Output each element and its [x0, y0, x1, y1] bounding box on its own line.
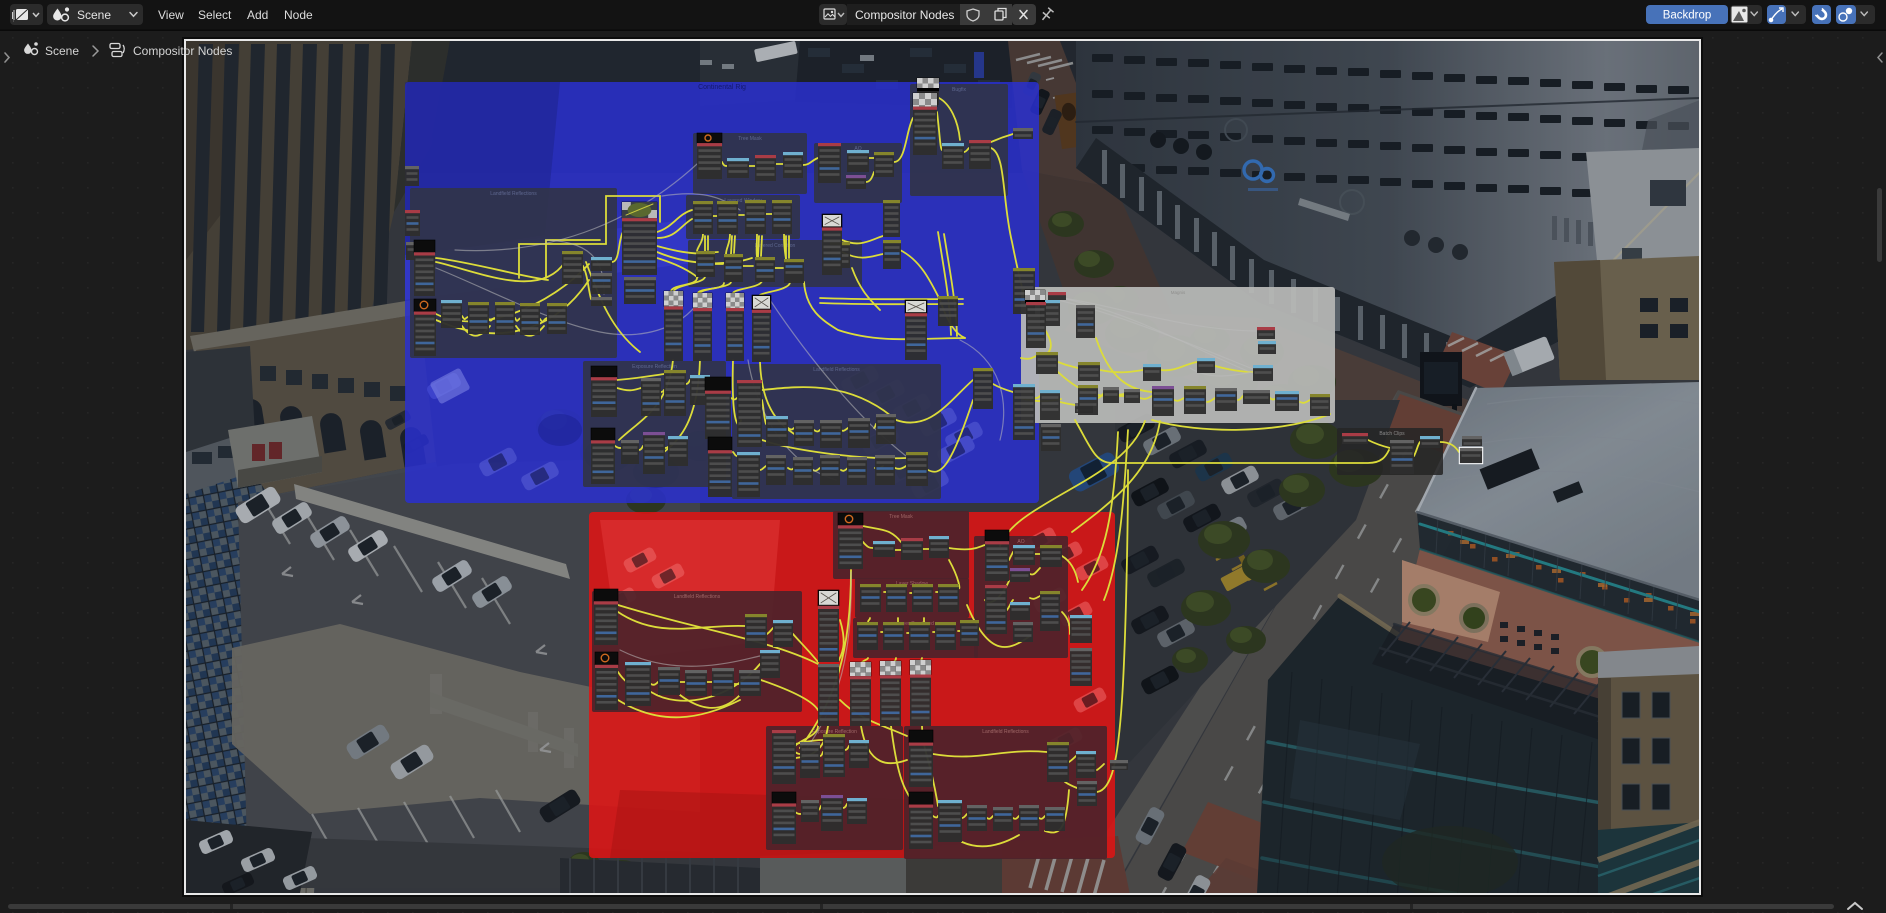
svg-text:Exposure Reflection: Exposure Reflection	[632, 364, 677, 370]
svg-text:Tree Mask: Tree Mask	[889, 514, 913, 520]
svg-text:Landfield Reflections: Landfield Reflections	[982, 729, 1029, 735]
svg-text:Add: Add	[247, 8, 268, 22]
svg-text:Tree Mask: Tree Mask	[738, 136, 762, 142]
svg-text:Landfield Reflections: Landfield Reflections	[490, 191, 537, 197]
svg-text:Scene: Scene	[45, 44, 79, 58]
svg-text:Compositor Nodes: Compositor Nodes	[855, 8, 954, 22]
svg-text:Magnis: Magnis	[1171, 290, 1186, 295]
svg-text:Select: Select	[198, 8, 232, 22]
svg-text:Batch Clips: Batch Clips	[1379, 431, 1405, 437]
svg-text:Scene: Scene	[77, 8, 111, 22]
svg-text:Bugfix: Bugfix	[952, 87, 966, 93]
svg-text:View: View	[158, 8, 184, 22]
svg-text:Landfield Reflections: Landfield Reflections	[674, 594, 721, 600]
svg-text:Node: Node	[284, 8, 313, 22]
svg-text:Backdrop: Backdrop	[1663, 10, 1712, 22]
svg-text:Compositor Nodes: Compositor Nodes	[133, 44, 232, 58]
svg-text:AO: AO	[1017, 539, 1024, 545]
svg-text:Continental Rig: Continental Rig	[698, 84, 746, 91]
